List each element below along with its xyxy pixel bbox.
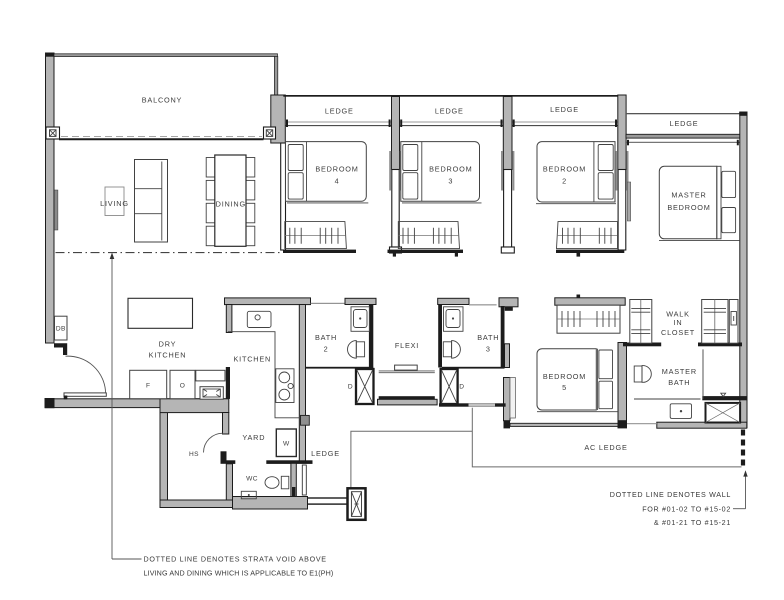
svg-text:YARD: YARD [242,433,265,442]
svg-text:BEDROOM: BEDROOM [543,372,586,381]
svg-text:D: D [459,384,464,391]
svg-text:DRY: DRY [159,339,177,348]
svg-text:BATH: BATH [477,333,499,342]
svg-text:D: D [348,384,353,391]
svg-text:BALCONY: BALCONY [142,96,182,105]
svg-text:LEDGE: LEDGE [550,105,579,114]
svg-text:CLOSET: CLOSET [661,328,695,337]
svg-text:LEDGE: LEDGE [311,449,340,458]
svg-text:HS: HS [189,451,199,458]
svg-text:MASTER: MASTER [671,191,706,200]
svg-text:DB: DB [56,326,66,333]
svg-text:LEDGE: LEDGE [325,107,354,116]
svg-text:LEDGE: LEDGE [670,119,699,128]
svg-text:FLEXI: FLEXI [395,341,419,350]
svg-text:BEDROOM: BEDROOM [315,165,358,174]
svg-text:FOR #01-02 TO #15-02: FOR #01-02 TO #15-02 [642,505,731,513]
svg-text:AC LEDGE: AC LEDGE [584,443,627,452]
svg-text:DOTTED LINE DENOTES STRATA VOI: DOTTED LINE DENOTES STRATA VOID ABOVE [144,556,327,564]
svg-text:DINING: DINING [216,199,246,208]
svg-text:BATH: BATH [315,333,337,342]
svg-text:4: 4 [335,177,340,186]
svg-text:BEDROOM: BEDROOM [543,165,586,174]
svg-text:WC: WC [246,475,258,482]
svg-text:KITCHEN: KITCHEN [149,351,187,360]
svg-text:O: O [180,382,186,389]
svg-text:3: 3 [448,177,453,186]
svg-text:DOTTED LINE DENOTES WALL: DOTTED LINE DENOTES WALL [610,491,731,499]
svg-text:W: W [283,441,290,448]
svg-text:LEDGE: LEDGE [435,107,464,116]
svg-text:& #01-21 TO #15-21: & #01-21 TO #15-21 [654,519,731,527]
svg-text:LIVING AND DINING WHICH IS APP: LIVING AND DINING WHICH IS APPLICABLE TO… [144,570,334,578]
svg-text:F: F [146,382,150,389]
svg-text:BEDROOM: BEDROOM [667,203,710,212]
svg-text:WALK: WALK [666,309,690,318]
svg-text:KITCHEN: KITCHEN [233,354,271,363]
svg-text:MASTER: MASTER [662,367,697,376]
svg-text:IN: IN [674,318,683,327]
svg-text:BEDROOM: BEDROOM [429,165,472,174]
svg-text:2: 2 [324,344,329,353]
svg-text:3: 3 [486,344,491,353]
svg-text:LIVING: LIVING [100,199,129,208]
svg-text:2: 2 [562,177,567,186]
svg-text:5: 5 [562,383,567,392]
svg-text:BATH: BATH [668,378,690,387]
